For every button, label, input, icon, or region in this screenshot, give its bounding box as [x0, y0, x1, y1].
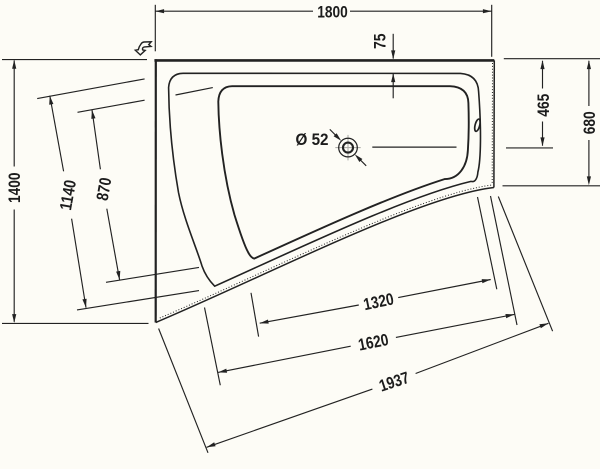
svg-text:1400: 1400: [5, 173, 24, 204]
svg-text:1800: 1800: [317, 2, 348, 21]
svg-text:680: 680: [580, 111, 599, 134]
svg-text:465: 465: [534, 94, 553, 117]
svg-text:Ø 52: Ø 52: [296, 130, 329, 149]
svg-text:75: 75: [371, 33, 390, 49]
svg-text:870: 870: [93, 176, 116, 202]
